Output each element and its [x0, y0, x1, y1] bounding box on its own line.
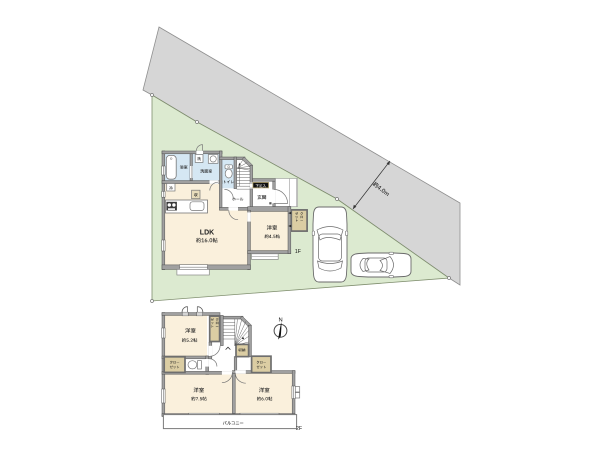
svg-text:1F: 1F [295, 249, 301, 255]
svg-text:N: N [279, 317, 283, 323]
svg-text:LDK: LDK [200, 230, 214, 237]
svg-text:2F: 2F [296, 426, 302, 432]
